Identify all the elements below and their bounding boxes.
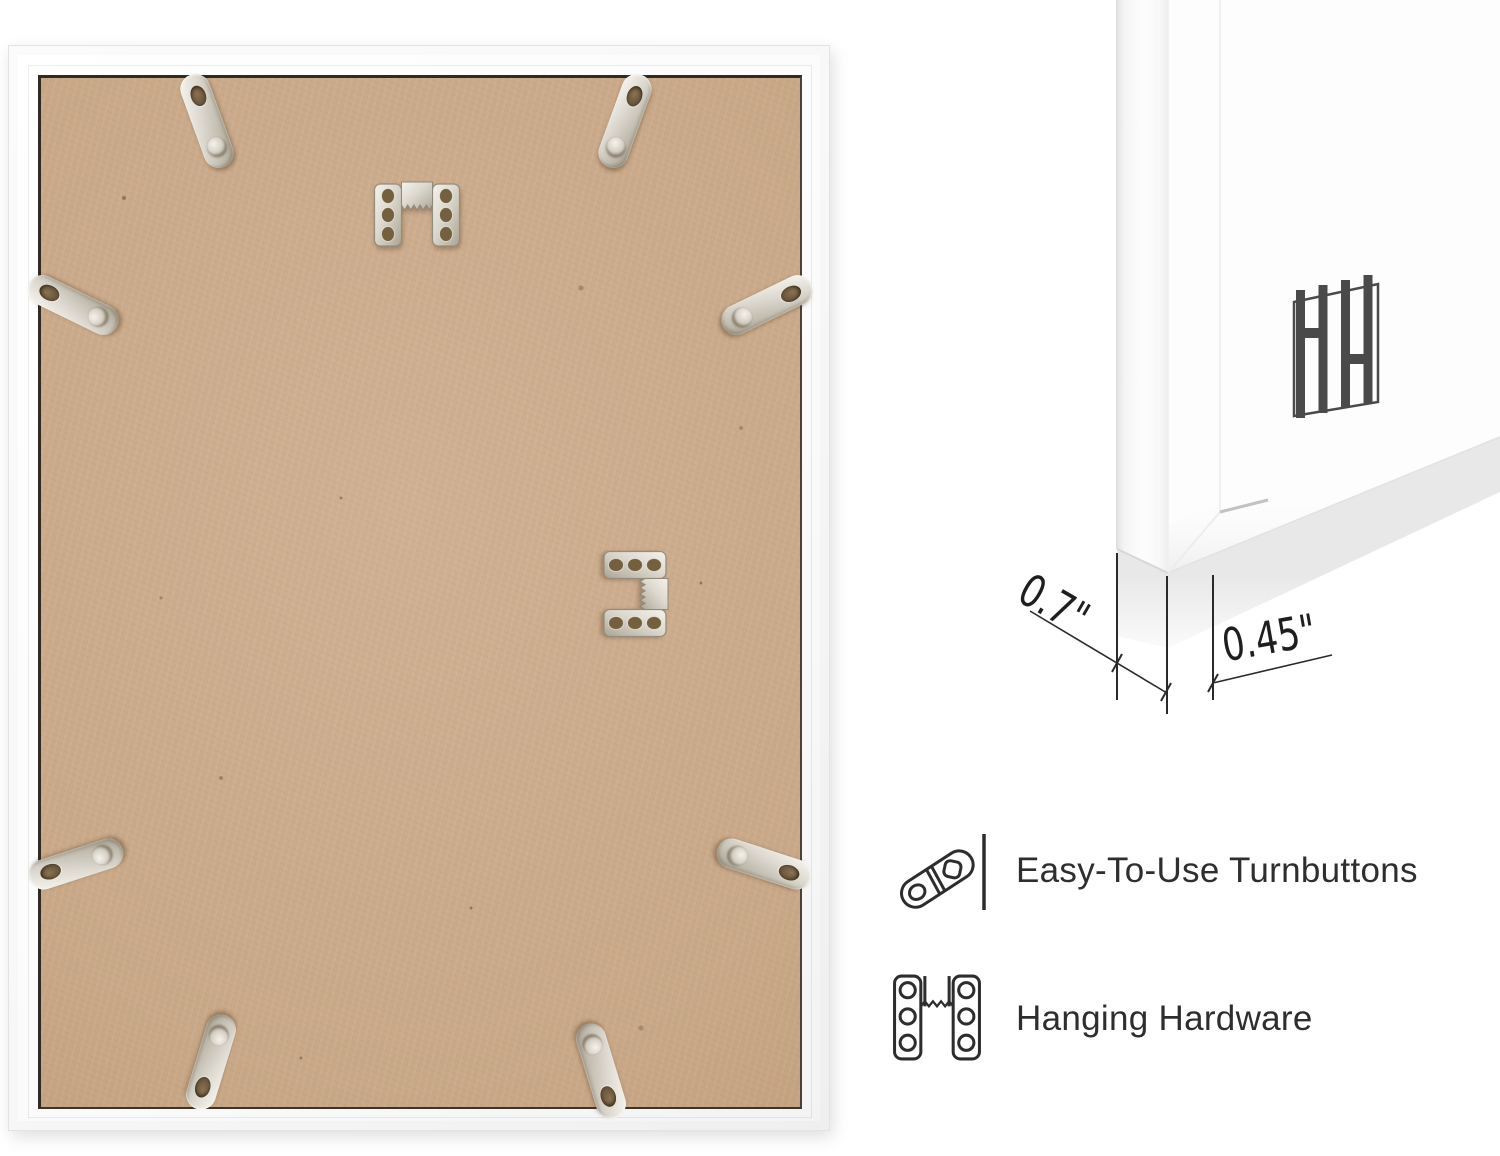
frame-back-photo [8, 45, 830, 1131]
turnbutton-icon [883, 826, 995, 930]
product-image: 0.7" 0.45" Easy-To-Use Turnbuttons [0, 0, 1500, 1156]
sawtooth-hanger-graphic [601, 550, 671, 638]
feature-label: Easy-To-Use Turnbuttons [1016, 851, 1418, 891]
frame-side-face [1117, 0, 1168, 573]
sawtooth-hanger-middle [601, 550, 671, 638]
feature-label: Hanging Hardware [1016, 999, 1313, 1039]
sawtooth-hanger-top [373, 179, 461, 249]
hanging-hardware-icon [886, 970, 988, 1066]
sawtooth-hanger-graphic [373, 179, 461, 249]
